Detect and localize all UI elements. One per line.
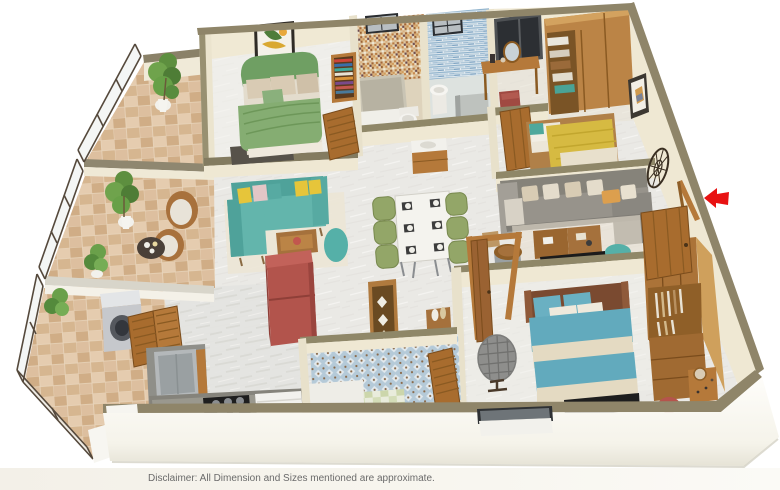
- svg-text:Disclaimer: All Dimension and: Disclaimer: All Dimension and Sizes ment…: [148, 473, 435, 484]
